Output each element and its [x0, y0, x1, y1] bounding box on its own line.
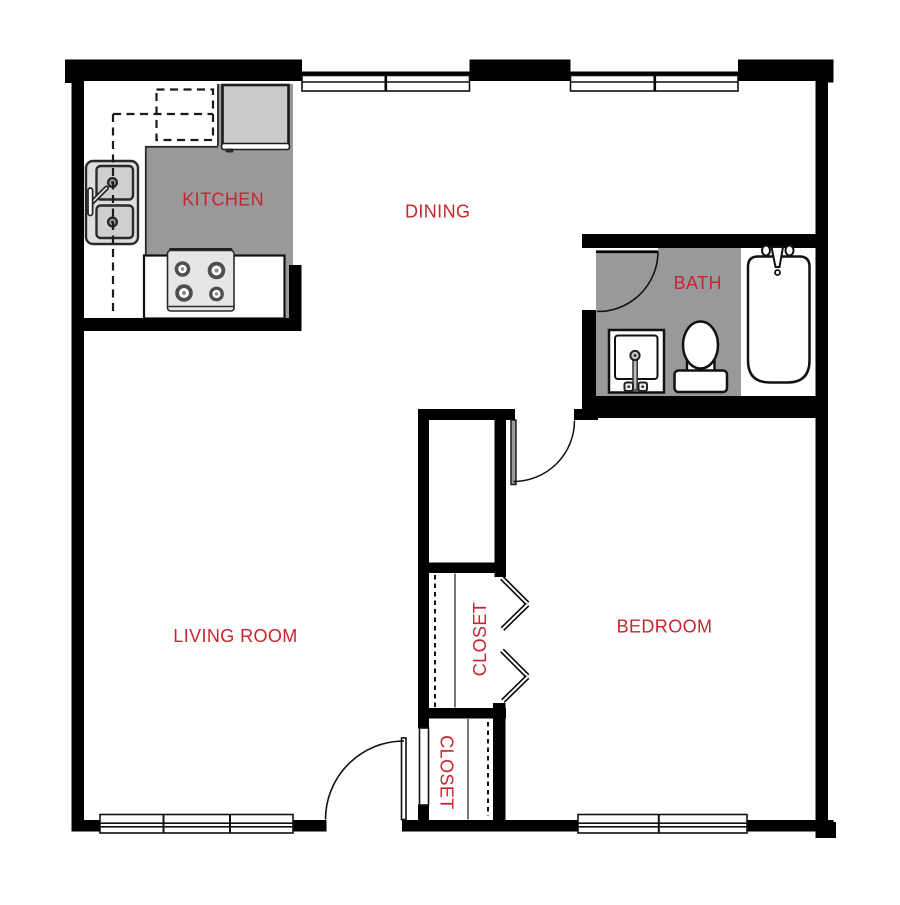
svg-text:KITCHEN: KITCHEN — [182, 190, 264, 210]
svg-text:LIVING ROOM: LIVING ROOM — [173, 626, 297, 646]
svg-text:DINING: DINING — [405, 202, 470, 222]
svg-text:BEDROOM: BEDROOM — [617, 617, 713, 637]
svg-text:CLOSET: CLOSET — [470, 602, 490, 676]
svg-text:CLOSET: CLOSET — [437, 735, 457, 809]
svg-text:BATH: BATH — [674, 273, 722, 293]
